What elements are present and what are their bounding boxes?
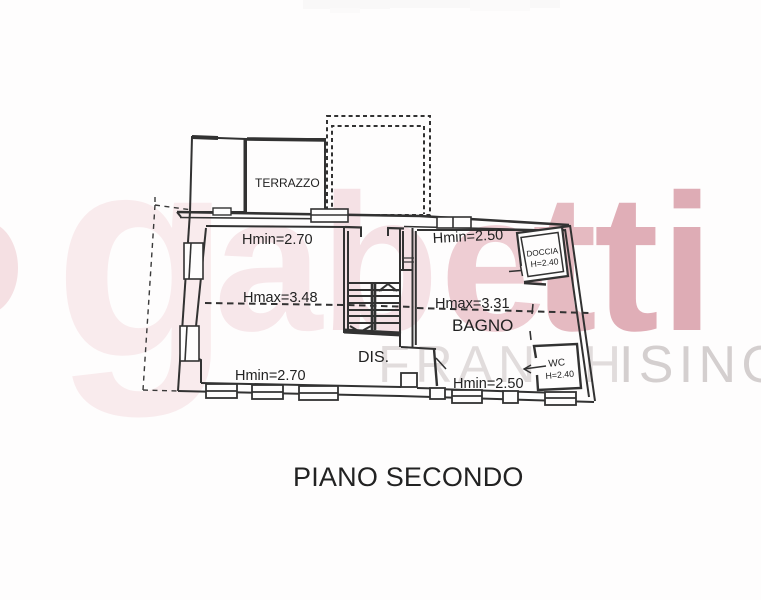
svg-text:TERRAZZO: TERRAZZO [255,176,320,190]
svg-text:g: g [54,94,231,419]
svg-text:WC: WC [548,357,566,369]
svg-text:ISING: ISING [619,336,761,394]
svg-text:Hmax=3.48: Hmax=3.48 [243,290,318,306]
svg-text:PIANO SECONDO: PIANO SECONDO [293,462,524,492]
svg-text:Hmin=2.50: Hmin=2.50 [453,376,524,392]
svg-text:DIS.: DIS. [358,349,389,366]
svg-text:Hmax=3.31: Hmax=3.31 [435,296,510,312]
svg-text:Hmin=2.70: Hmin=2.70 [235,368,306,384]
svg-text:Hmin=2.70: Hmin=2.70 [242,232,313,248]
svg-text:BAGNO: BAGNO [452,316,513,335]
